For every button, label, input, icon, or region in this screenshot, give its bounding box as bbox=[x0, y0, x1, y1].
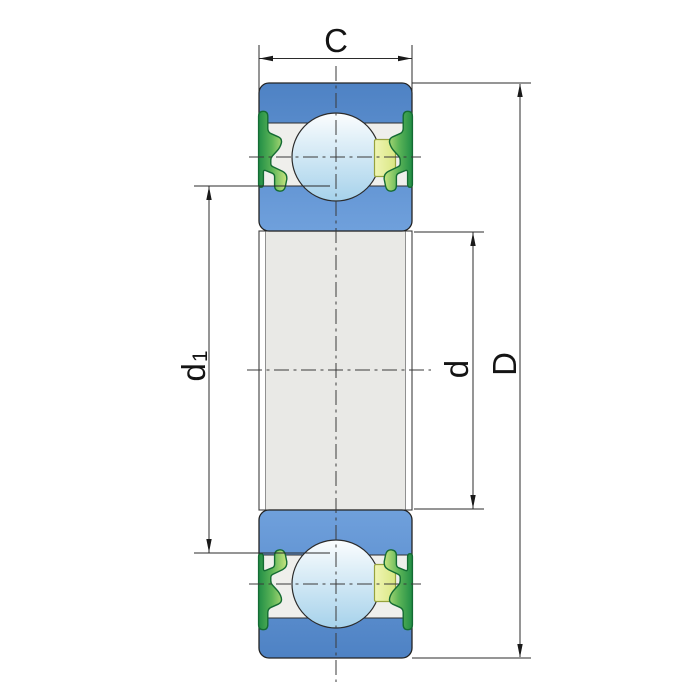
dim-D-arrow-bottom bbox=[517, 644, 522, 658]
dimension-label-C-text: C bbox=[324, 24, 348, 57]
dim-d1-arrow-top bbox=[206, 187, 211, 201]
dim-D-arrow-top bbox=[517, 84, 522, 98]
dimension-label-d1-sub: 1 bbox=[190, 350, 211, 362]
dimension-label-d1-main: d bbox=[177, 363, 210, 381]
dimension-label-d1: d1 bbox=[175, 336, 211, 396]
bearing-drawing bbox=[0, 0, 700, 700]
dimension-label-d: d bbox=[438, 339, 474, 399]
dimension-label-C: C bbox=[318, 22, 354, 58]
dimension-label-D: D bbox=[486, 334, 522, 394]
dim-d1-arrow-bottom bbox=[206, 539, 211, 553]
dim-d-arrow-top bbox=[470, 233, 475, 247]
bearing-cross-section-diagram: C D d d1 bbox=[0, 0, 700, 700]
dimension-label-d-text: d bbox=[440, 360, 473, 378]
dim-C-arrow-right bbox=[398, 56, 412, 61]
dim-C-arrow-left bbox=[260, 56, 274, 61]
dim-d-arrow-bottom bbox=[470, 495, 475, 509]
dimension-label-D-text: D bbox=[488, 352, 521, 376]
